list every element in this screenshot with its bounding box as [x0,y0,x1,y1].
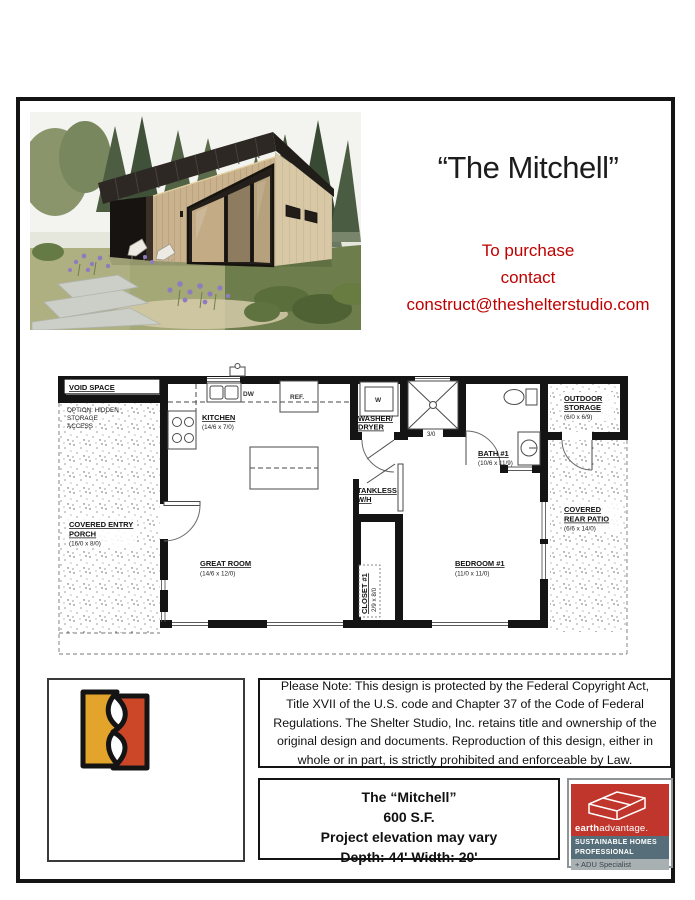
bedroom-pocket-door [398,464,403,511]
rear-patio-label-1: COVERED [564,505,602,514]
washer-label-2: DRYER [358,423,385,432]
shower-dim: 3/0 [427,432,436,438]
closet-dims: 2/9 x 8/0 [371,587,378,612]
copyright-notice: Please Note: This design is protected by… [260,675,670,771]
page-title: “The Mitchell” [378,150,678,186]
washer-w-label: W [375,397,382,404]
contact-email: construct@theshelterstudio.com [378,291,678,318]
floor-plan: VOID SPACE OPTION: HIDDEN STORAGE ACCESS… [56,362,648,664]
porch-dims: (16/0 x 8/0) [69,541,101,548]
great-room-label: GREAT ROOM [200,559,251,568]
tankless-label-2: W/H [357,495,372,504]
closet-label: CLOSET #1 [360,573,369,614]
bath-dims: (10/6 x 11/9) [478,460,513,467]
project-dimensions: Depth: 44' Width: 20' [260,847,558,867]
outdoor-storage-dims: (6/0 x 6/9) [564,414,592,421]
kitchen-fixtures [168,381,350,489]
toilet [504,390,524,405]
bath-label: BATH #1 [478,449,509,458]
purchase-contact: To purchase contact construct@theshelter… [378,237,678,319]
rear-patio-label-2: REAR PATIO [564,515,609,524]
shelter-studio-logo-icon [75,688,155,772]
option-note-3: ACCESS [67,423,93,430]
project-name: The “Mitchell” [260,787,558,807]
earth-advantage-wordmark: earthadvantage. [575,823,648,834]
ea-band-line-1: SUSTAINABLE HOMES [575,838,669,848]
porch-stipple [59,402,160,633]
great-room-dims: (14/6 x 12/0) [200,571,235,578]
bedroom-label: BEDROOM #1 [455,559,505,568]
kitchen-label: KITCHEN [202,413,235,422]
outdoor-storage-label-2: STORAGE [564,403,601,412]
earth-advantage-red-panel: earthadvantage. [571,784,669,836]
tankless-label-1: TANKLESS [357,486,397,495]
outdoor-storage-label-1: OUTDOOR [564,394,603,403]
roof-vent-icon [230,364,245,377]
earth-advantage-band: SUSTAINABLE HOMES PROFESSIONAL [571,836,669,859]
earth-advantage-house-icon [571,784,669,820]
project-sqft: 600 S.F. [260,807,558,827]
void-space-label: VOID SPACE [69,383,115,392]
porch-label-1: COVERED ENTRY [69,520,133,529]
project-note: Project elevation may vary [260,827,558,847]
ea-brand-bold: earth [575,823,599,834]
ea-band-line-2: PROFESSIONAL [575,848,669,858]
earth-advantage-strip: + ADU Specialist [571,859,669,870]
kitchen-dims: (14/6 x 7/0) [202,424,234,431]
shelter-studio-logo-box: Designs for the Built Environment THE sh… [47,678,245,862]
page: “The Mitchell” To purchase contact const… [0,0,695,900]
project-info-box: The “Mitchell” 600 S.F. Project elevatio… [258,778,560,860]
contact-line-2: contact [378,264,678,291]
bedroom-dims: (11/0 x 11/0) [455,571,489,578]
ea-brand-rest: advantage. [599,823,648,834]
house-photo [30,112,361,330]
porch-label-2: PORCH [69,530,96,539]
patio-stipple [550,440,627,632]
contact-line-1: To purchase [378,237,678,264]
fridge-label: REF. [290,394,304,401]
dishwasher-label: DW [243,391,255,398]
option-note-2: STORAGE [67,415,98,422]
copyright-box: Please Note: This design is protected by… [258,678,672,768]
earth-advantage-badge: earthadvantage. SUSTAINABLE HOMES PROFES… [567,778,673,868]
option-note-1: OPTION: HIDDEN [67,407,119,414]
rear-patio-dims: (6/6 x 14/0) [564,526,596,533]
